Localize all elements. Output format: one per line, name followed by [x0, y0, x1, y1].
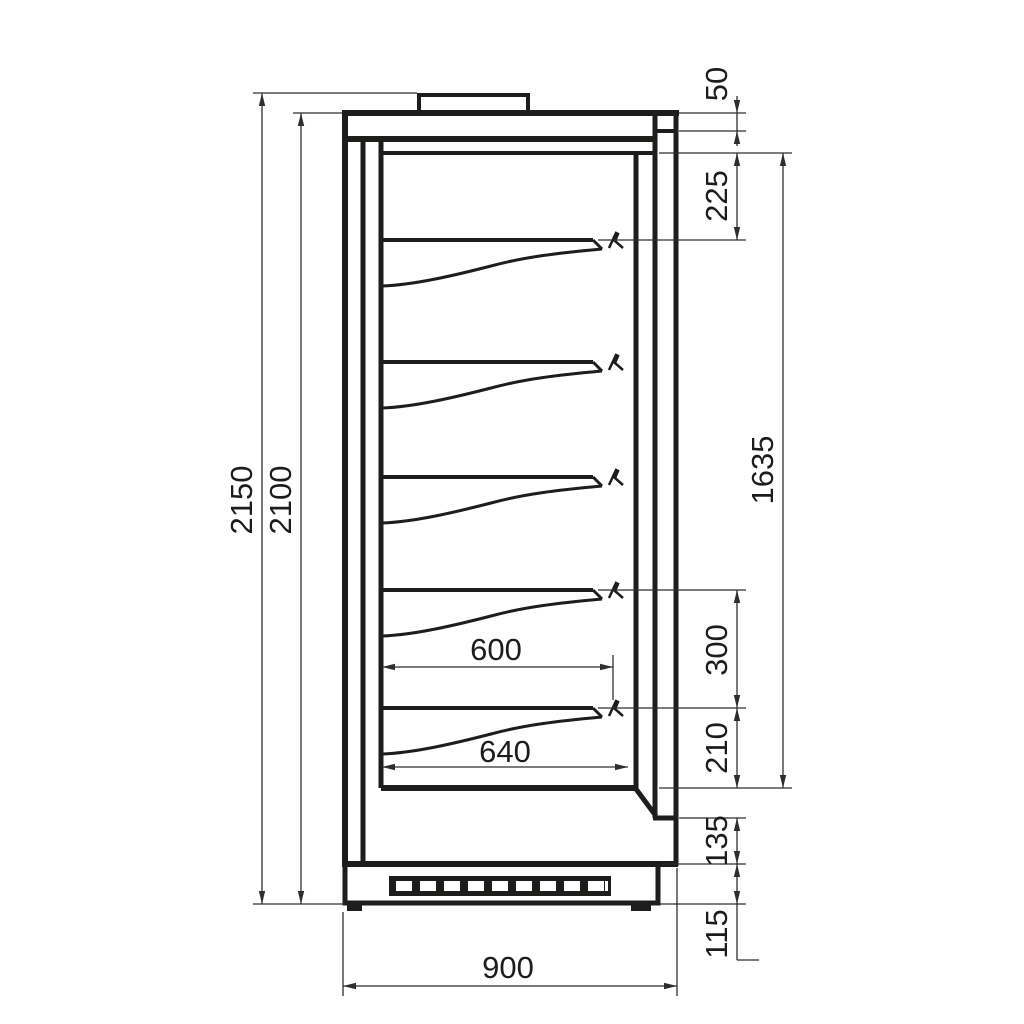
vent-slot — [540, 881, 556, 891]
arrowhead-up — [734, 818, 740, 831]
vent-slot-end — [605, 881, 608, 891]
vent-slot — [564, 881, 580, 891]
vent-grille — [389, 876, 611, 896]
arrowhead-up — [734, 708, 740, 721]
dimension-deck-depth: 640 — [382, 734, 628, 770]
shelf-support-curve — [382, 371, 602, 408]
dimension-display-opening: 1635 — [659, 153, 792, 788]
dim-plinth-label: 115 — [699, 909, 734, 958]
dim-overall-depth-label: 900 — [482, 950, 534, 985]
arrowhead-down — [734, 851, 740, 864]
arrowhead-up — [780, 153, 786, 166]
arrowhead-down — [298, 891, 304, 904]
dim-bottom-shelf-to-deck-label: 210 — [699, 722, 734, 774]
dim-overall-height-label: 2150 — [224, 466, 259, 535]
arrowhead-down — [734, 775, 740, 788]
foot-left — [347, 903, 362, 911]
top-block — [419, 95, 528, 111]
shelf-4 — [381, 583, 623, 636]
vent-slot — [444, 881, 460, 891]
arrowhead-down — [259, 891, 265, 904]
dimension-overall-height: 2150 — [224, 93, 417, 904]
technical-drawing: 2150 2100 50 225 1635 — [0, 0, 1024, 1024]
dim-top-panel-label: 50 — [699, 67, 734, 101]
arrowhead-left — [382, 764, 395, 770]
arrowhead-down — [734, 891, 740, 904]
dimension-plinth: 115 — [660, 864, 759, 960]
arrowhead-right — [600, 664, 613, 670]
vent-slot — [420, 881, 436, 891]
arrowhead-up — [734, 153, 740, 166]
shelf-bracket-tick — [609, 355, 623, 370]
dim-shelf-depth-label: 600 — [470, 632, 522, 667]
arrowhead-up — [298, 113, 304, 126]
arrowhead-left — [382, 664, 395, 670]
arrowhead-right — [664, 983, 677, 989]
dimension-shelf-depth: 600 — [382, 632, 613, 700]
dimension-bottom-shelf-to-deck: 210 — [598, 708, 746, 788]
cabinet-body — [342, 95, 679, 911]
vent-slot — [516, 881, 532, 891]
shelf-1 — [381, 233, 623, 286]
dim-cabinet-height-label: 2100 — [263, 466, 298, 535]
arrowhead-down — [734, 227, 740, 240]
drawing-canvas: 2150 2100 50 225 1635 — [0, 0, 1024, 1024]
dim-first-shelf-label: 225 — [699, 170, 734, 222]
arrowhead-down — [734, 100, 740, 113]
shelf-bracket-tick — [609, 470, 623, 485]
dim-shelf-pitch-label: 300 — [699, 624, 734, 676]
dimension-top-panel: 50 — [679, 67, 746, 146]
vent-slot — [396, 881, 412, 891]
arrowhead-left — [343, 983, 356, 989]
arrowhead-up — [734, 131, 740, 144]
arrowhead-up — [734, 590, 740, 603]
arrowhead-down — [734, 695, 740, 708]
shelf-2 — [381, 355, 623, 408]
dim-machine-compartment-label: 135 — [699, 815, 734, 867]
shelf-support-curve — [382, 486, 602, 523]
shelf-support-curve — [382, 249, 602, 286]
arrowhead-right — [615, 764, 628, 770]
dimension-cabinet-height: 2100 — [263, 113, 342, 904]
arrowhead-up — [259, 93, 265, 106]
dimension-shelf-pitch: 300 — [598, 590, 746, 708]
arrowhead-up — [734, 864, 740, 877]
shelf-3 — [381, 470, 623, 523]
vent-slot — [468, 881, 484, 891]
foot-right — [631, 903, 651, 911]
dim-deck-depth-label: 640 — [479, 734, 531, 769]
dim-display-opening-label: 1635 — [745, 436, 780, 505]
vent-slot — [492, 881, 508, 891]
vent-slot — [588, 881, 604, 891]
shelf-support-curve — [382, 599, 602, 636]
dimension-first-shelf: 225 — [598, 153, 792, 240]
arrowhead-down — [780, 775, 786, 788]
